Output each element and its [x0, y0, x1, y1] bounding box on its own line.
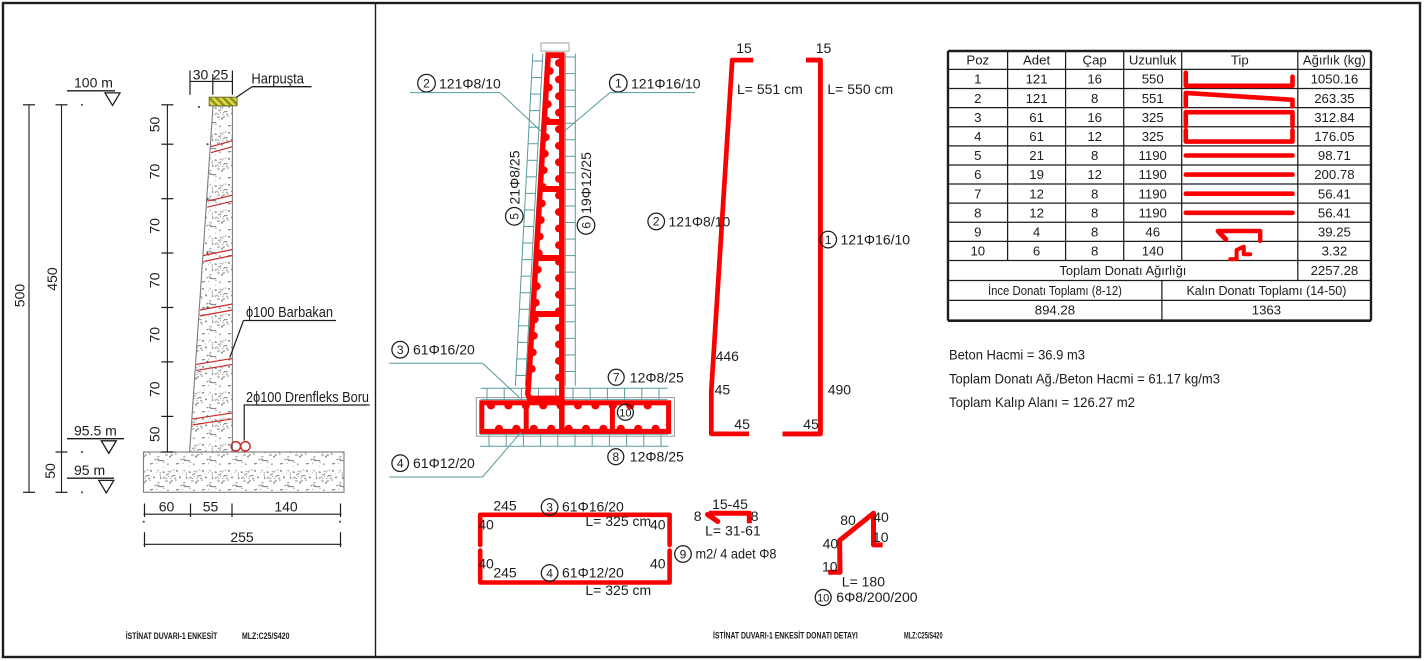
- svg-text:9: 9: [974, 225, 981, 240]
- svg-text:70: 70: [147, 272, 163, 288]
- svg-text:19: 19: [1029, 167, 1044, 182]
- svg-text:L= 550 cm: L= 550 cm: [827, 81, 893, 97]
- svg-text:12: 12: [1029, 186, 1044, 201]
- svg-text:45: 45: [734, 416, 750, 432]
- svg-text:4: 4: [397, 457, 404, 471]
- svg-text:3: 3: [546, 500, 553, 514]
- svg-text:61Φ12/20: 61Φ12/20: [562, 565, 624, 581]
- svg-text:L= 31-61: L= 31-61: [705, 523, 761, 539]
- svg-text:Harpuşta: Harpuşta: [251, 70, 304, 87]
- svg-text:60: 60: [159, 499, 175, 515]
- svg-text:40: 40: [478, 556, 494, 572]
- svg-text:Beton Hacmi = 36.9 m3: Beton Hacmi = 36.9 m3: [949, 348, 1085, 363]
- svg-text:1: 1: [974, 72, 981, 87]
- svg-text:12Φ8/25: 12Φ8/25: [630, 369, 684, 385]
- svg-text:40: 40: [650, 556, 666, 572]
- svg-text:8: 8: [612, 450, 619, 464]
- svg-text:Kalın Donatı Toplamı (14-50): Kalın Donatı Toplamı (14-50): [1186, 283, 1346, 298]
- svg-text:1363: 1363: [1252, 303, 1281, 318]
- svg-text:121Φ8/10: 121Φ8/10: [439, 75, 501, 91]
- svg-text:6: 6: [1033, 244, 1040, 259]
- svg-text:15-45: 15-45: [712, 496, 748, 512]
- svg-text:61Φ12/20: 61Φ12/20: [413, 455, 475, 471]
- svg-text:56.41: 56.41: [1318, 186, 1351, 201]
- svg-text:245: 245: [493, 498, 517, 514]
- svg-text:MLZ:C25/S420: MLZ:C25/S420: [904, 631, 943, 641]
- svg-text:551: 551: [1142, 91, 1164, 106]
- svg-text:40: 40: [873, 509, 889, 525]
- svg-text:95.5 m: 95.5 m: [74, 423, 117, 439]
- svg-text:1190: 1190: [1139, 148, 1167, 163]
- svg-text:46: 46: [1145, 225, 1160, 240]
- svg-text:45: 45: [715, 382, 731, 398]
- svg-text:200.78: 200.78: [1314, 167, 1354, 182]
- svg-text:40: 40: [823, 536, 839, 552]
- svg-text:Uzunluk: Uzunluk: [1129, 52, 1177, 67]
- svg-text:12Φ8/25: 12Φ8/25: [630, 448, 684, 464]
- svg-text:4: 4: [1033, 225, 1040, 240]
- svg-text:56.41: 56.41: [1318, 205, 1351, 220]
- svg-text:2ϕ100 Drenfleks Boru: 2ϕ100 Drenfleks Boru: [246, 389, 369, 406]
- svg-text:L= 180: L= 180: [842, 574, 885, 590]
- svg-text:m2/ 4 adet Φ8: m2/ 4 adet Φ8: [696, 546, 777, 562]
- svg-text:2257.28: 2257.28: [1311, 263, 1359, 278]
- svg-text:21Φ8/25: 21Φ8/25: [506, 150, 522, 204]
- svg-text:8: 8: [1091, 244, 1098, 259]
- svg-text:9: 9: [680, 547, 687, 561]
- svg-text:10: 10: [970, 244, 985, 259]
- svg-text:1: 1: [825, 233, 832, 247]
- svg-text:140: 140: [274, 499, 298, 515]
- svg-text:245: 245: [493, 565, 517, 581]
- svg-text:490: 490: [828, 382, 852, 398]
- svg-text:10: 10: [817, 592, 829, 604]
- svg-text:12: 12: [1087, 167, 1102, 182]
- svg-text:2: 2: [653, 215, 660, 229]
- svg-text:10: 10: [822, 558, 838, 574]
- svg-text:61Φ16/20: 61Φ16/20: [413, 341, 475, 357]
- svg-text:İnce Donatı Toplamı (8-12): İnce Donatı Toplamı (8-12): [988, 283, 1122, 298]
- svg-text:8: 8: [1091, 225, 1098, 240]
- svg-text:15: 15: [736, 40, 752, 56]
- svg-text:12: 12: [1087, 129, 1102, 144]
- svg-text:8: 8: [974, 205, 981, 220]
- svg-text:5: 5: [508, 213, 522, 220]
- svg-text:98.71: 98.71: [1318, 148, 1351, 163]
- svg-text:50: 50: [147, 117, 163, 133]
- svg-text:263.35: 263.35: [1314, 91, 1354, 106]
- svg-text:8: 8: [1091, 148, 1098, 163]
- svg-text:3: 3: [397, 343, 404, 357]
- svg-text:325: 325: [1142, 129, 1164, 144]
- svg-text:70: 70: [147, 327, 163, 343]
- svg-text:Toplam Donatı Ağ./Beton Hacmi: Toplam Donatı Ağ./Beton Hacmi = 61.17 kg…: [949, 371, 1220, 386]
- svg-text:L= 551 cm: L= 551 cm: [737, 81, 803, 97]
- svg-text:70: 70: [147, 218, 163, 234]
- svg-text:30: 30: [193, 66, 209, 82]
- svg-text:7: 7: [974, 186, 981, 201]
- svg-text:61: 61: [1029, 129, 1044, 144]
- svg-text:50: 50: [42, 463, 58, 479]
- svg-text:15: 15: [816, 40, 832, 56]
- svg-text:1190: 1190: [1139, 186, 1167, 201]
- svg-text:450: 450: [44, 267, 60, 291]
- svg-text:Ağırlık (kg): Ağırlık (kg): [1303, 52, 1366, 67]
- svg-text:Çap: Çap: [1083, 52, 1107, 67]
- svg-text:45: 45: [803, 416, 819, 432]
- svg-text:446: 446: [716, 348, 740, 364]
- svg-text:500: 500: [12, 284, 28, 308]
- svg-text:6Φ8/200/200: 6Φ8/200/200: [836, 589, 917, 605]
- svg-text:21: 21: [1029, 148, 1044, 163]
- svg-text:8: 8: [694, 508, 702, 524]
- svg-text:61: 61: [1029, 110, 1044, 125]
- svg-text:1050.16: 1050.16: [1311, 72, 1359, 87]
- svg-text:L= 325 cm: L= 325 cm: [585, 582, 651, 598]
- svg-text:Tip: Tip: [1231, 52, 1249, 67]
- svg-text:70: 70: [147, 164, 163, 180]
- svg-text:İSTİNAT DUVARI-1 ENKESİT DONAT: İSTİNAT DUVARI-1 ENKESİT DONATI DETAYI: [713, 631, 858, 641]
- svg-text:140: 140: [1142, 244, 1164, 259]
- svg-text:39.25: 39.25: [1318, 225, 1351, 240]
- svg-text:121Φ8/10: 121Φ8/10: [669, 213, 731, 229]
- svg-text:4: 4: [546, 566, 553, 580]
- svg-text:70: 70: [147, 381, 163, 397]
- svg-text:Poz: Poz: [966, 52, 989, 67]
- svg-text:121Φ16/10: 121Φ16/10: [841, 232, 911, 248]
- svg-text:40: 40: [650, 517, 666, 533]
- svg-text:Adet: Adet: [1023, 52, 1050, 67]
- svg-text:ϕ100 Barbakan: ϕ100 Barbakan: [246, 304, 333, 321]
- svg-text:Toplam Kalıp Alanı = 126.27 m2: Toplam Kalıp Alanı = 126.27 m2: [949, 395, 1135, 410]
- svg-text:121: 121: [1026, 91, 1048, 106]
- svg-text:16: 16: [1087, 110, 1102, 125]
- svg-text:19Φ12/25: 19Φ12/25: [578, 152, 594, 214]
- svg-text:MLZ:C25/S420: MLZ:C25/S420: [242, 631, 290, 641]
- svg-text:6: 6: [579, 222, 593, 229]
- svg-text:50: 50: [147, 426, 163, 442]
- svg-text:1190: 1190: [1139, 205, 1167, 220]
- svg-text:2: 2: [974, 91, 981, 106]
- svg-text:12: 12: [1029, 205, 1044, 220]
- svg-text:80: 80: [840, 512, 856, 528]
- svg-text:894.28: 894.28: [1035, 303, 1075, 318]
- svg-text:55: 55: [203, 499, 219, 515]
- svg-text:1: 1: [615, 77, 622, 91]
- svg-text:8: 8: [1091, 91, 1098, 106]
- svg-text:8: 8: [1091, 205, 1098, 220]
- svg-text:312.84: 312.84: [1314, 110, 1354, 125]
- svg-text:255: 255: [230, 529, 254, 545]
- svg-text:5: 5: [974, 148, 981, 163]
- svg-text:İSTİNAT DUVARI-1 ENKESİT: İSTİNAT DUVARI-1 ENKESİT: [126, 631, 218, 641]
- svg-text:10: 10: [873, 529, 889, 545]
- svg-text:95 m: 95 m: [74, 462, 105, 478]
- svg-text:Toplam Donatı Ağırlığı: Toplam Donatı Ağırlığı: [1059, 263, 1186, 278]
- svg-text:121: 121: [1026, 72, 1048, 87]
- svg-text:40: 40: [478, 517, 494, 533]
- svg-text:3.32: 3.32: [1322, 244, 1348, 259]
- svg-text:325: 325: [1142, 110, 1164, 125]
- svg-text:6: 6: [974, 167, 981, 182]
- svg-text:8: 8: [1091, 186, 1098, 201]
- svg-text:L= 325 cm: L= 325 cm: [585, 513, 651, 529]
- svg-text:3: 3: [974, 110, 981, 125]
- svg-text:7: 7: [613, 371, 620, 385]
- svg-text:550: 550: [1142, 72, 1164, 87]
- svg-text:16: 16: [1087, 72, 1102, 87]
- svg-text:4: 4: [974, 129, 981, 144]
- svg-text:25: 25: [213, 66, 229, 82]
- svg-text:100 m: 100 m: [74, 75, 113, 91]
- svg-text:121Φ16/10: 121Φ16/10: [631, 75, 701, 91]
- svg-text:10: 10: [619, 407, 631, 419]
- svg-text:176.05: 176.05: [1314, 129, 1354, 144]
- svg-text:1190: 1190: [1139, 167, 1167, 182]
- svg-text:2: 2: [423, 77, 430, 91]
